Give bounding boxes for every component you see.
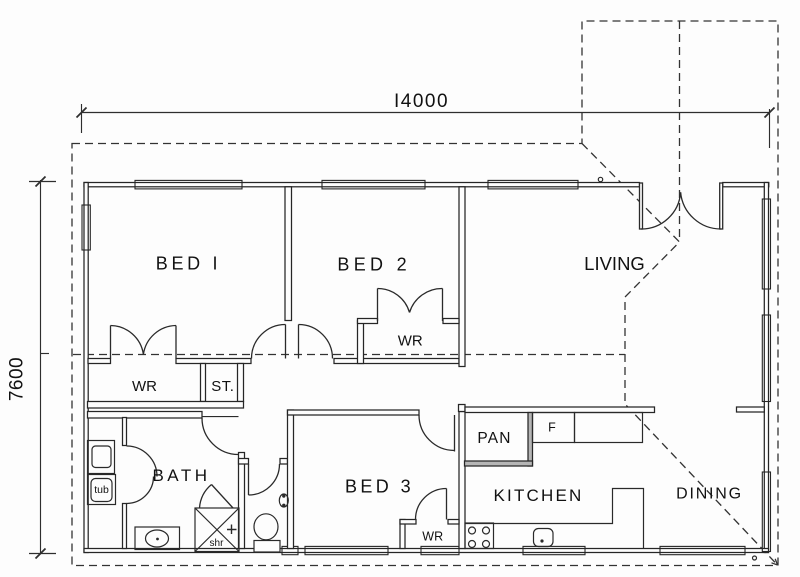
svg-text:BED 3: BED 3 [345,477,414,497]
svg-text:PAN: PAN [477,430,511,447]
svg-text:shr: shr [210,538,225,549]
svg-text:ST.: ST. [211,378,234,395]
svg-text:7600: 7600 [7,357,28,401]
svg-text:BATH: BATH [152,466,210,485]
svg-text:WR: WR [422,530,443,544]
svg-text:tub: tub [94,484,109,496]
svg-text:I4000: I4000 [394,91,449,112]
svg-text:BED 2: BED 2 [337,254,411,274]
svg-text:KITCHEN: KITCHEN [493,486,583,505]
svg-text:F: F [548,421,556,435]
svg-text:LIVING: LIVING [584,253,645,274]
svg-text:WR: WR [132,378,157,395]
svg-text:WR: WR [398,333,423,350]
svg-text:BED I: BED I [156,254,222,274]
svg-text:DINING: DINING [676,486,743,503]
